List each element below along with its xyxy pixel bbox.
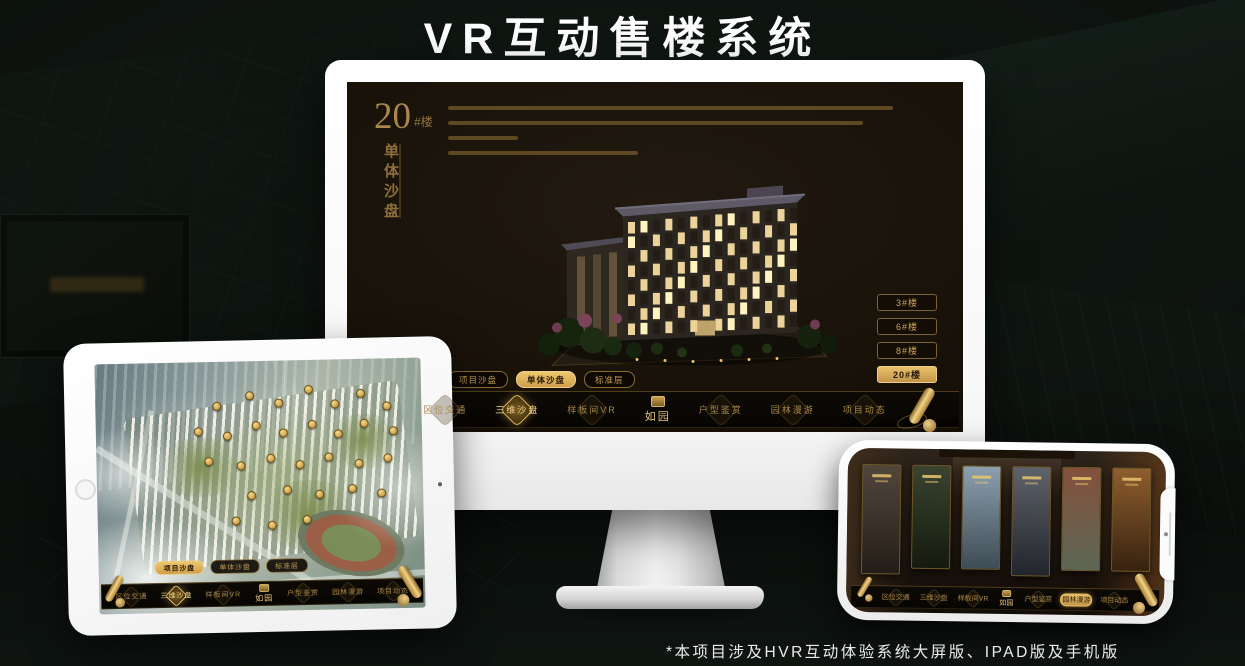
floor-button[interactable]: 8#楼 — [877, 342, 937, 359]
building-marker-icon[interactable] — [383, 453, 392, 462]
scroll-tip — [115, 598, 125, 608]
scene-panel[interactable] — [911, 465, 951, 570]
scroll-icon[interactable] — [1133, 570, 1158, 614]
building-markers — [94, 358, 425, 615]
building-marker-icon[interactable] — [348, 484, 357, 493]
page-title: VR互动售楼系统 — [0, 4, 1245, 66]
floor-button-label: 8#楼 — [896, 344, 918, 357]
building-marker-icon[interactable] — [330, 399, 339, 408]
phone-speaker-icon — [1169, 512, 1172, 556]
nav-item[interactable]: 样板间VR — [957, 591, 990, 605]
tablet-device: 项目沙盘 单体沙盘 标准层 区位交通 — [63, 336, 457, 636]
building-marker-icon[interactable] — [315, 490, 324, 499]
nav-item-label: 户型鉴赏 — [1024, 596, 1052, 603]
floor-button-label: 20#楼 — [893, 368, 921, 381]
nav-item-label: 户型鉴赏 — [699, 405, 743, 415]
scroll-tip — [923, 419, 936, 432]
nav-item-label: 园林漫游 — [1062, 596, 1090, 603]
building-marker-icon[interactable] — [308, 420, 317, 429]
brand-logo-text: 如园 — [255, 592, 273, 603]
phone-notch — [1159, 488, 1175, 580]
scroll-icon[interactable] — [858, 574, 873, 601]
nav-item-label: 园林漫游 — [332, 588, 364, 596]
nav-group-right: 户型鉴赏 园林漫游 项目动态 — [697, 399, 889, 420]
scroll-tip — [1133, 602, 1145, 614]
floor-button[interactable]: 6#楼 — [877, 318, 937, 335]
nav-item-label: 区位交通 — [882, 594, 910, 601]
floor-button[interactable]: 20#楼 — [877, 366, 937, 383]
nav-item[interactable]: 园林漫游 — [769, 399, 817, 420]
building-marker-icon[interactable] — [295, 460, 304, 469]
brand-logo: 如园 — [255, 583, 273, 603]
main-navbar: 区位交通 三维沙盘 样板间VR 如园 — [351, 391, 959, 428]
building-marker-icon[interactable] — [360, 419, 369, 428]
building-marker-icon[interactable] — [213, 402, 222, 411]
brand-logo: 如园 — [999, 589, 1013, 607]
brand-logo-text: 如园 — [645, 408, 671, 424]
view-tab-label: 单体沙盘 — [219, 561, 250, 571]
view-tab[interactable]: 标准层 — [584, 371, 635, 388]
scene-panel[interactable] — [1061, 467, 1101, 572]
view-tabs: 项目沙盘 单体沙盘 标准层 — [448, 371, 635, 388]
brand-seal-icon — [651, 396, 665, 407]
building-3d-model[interactable] — [497, 148, 877, 393]
brand-seal-icon — [259, 583, 269, 591]
building-marker-icon[interactable] — [283, 485, 292, 494]
scroll-icon[interactable] — [397, 562, 422, 606]
view-tab[interactable]: 项目沙盘 — [155, 560, 204, 575]
view-tab[interactable]: 单体沙盘 — [516, 371, 576, 388]
nav-item-label: 三维沙盘 — [495, 405, 539, 415]
nav-item[interactable]: 三维沙盘 — [493, 399, 541, 420]
building-marker-icon[interactable] — [266, 453, 275, 462]
view-tab-label: 项目沙盘 — [164, 562, 195, 572]
tablet-screen: 项目沙盘 单体沙盘 标准层 区位交通 — [94, 358, 425, 615]
promo-canvas: VR互动售楼系统 20 #楼 单体沙盘 — [0, 0, 1245, 666]
description-line — [448, 106, 893, 110]
nav-group-left: 区位交通 三维沙盘 样板间VR — [881, 590, 990, 606]
nav-item[interactable]: 区位交通 — [421, 399, 469, 420]
nav-item-label: 三维沙盘 — [160, 592, 192, 600]
view-tab-label: 标准层 — [595, 374, 624, 386]
view-tab-label: 项目沙盘 — [459, 374, 497, 386]
nav-item-label: 样板间VR — [567, 405, 617, 415]
building-marker-icon[interactable] — [324, 452, 333, 461]
phone-camera-icon — [1164, 532, 1168, 536]
building-marker-icon[interactable] — [356, 389, 365, 398]
tablet-camera-icon — [438, 482, 442, 486]
nav-item[interactable]: 项目动态 — [841, 399, 889, 420]
nav-item-label: 样板间VR — [958, 595, 989, 602]
brand-logo-text: 如园 — [999, 597, 1013, 607]
building-number: 20 — [374, 98, 411, 135]
scroll-icon[interactable] — [910, 384, 936, 432]
building-marker-icon[interactable] — [278, 428, 287, 437]
view-tab[interactable]: 单体沙盘 — [210, 559, 259, 574]
description-line — [448, 121, 863, 125]
building-marker-icon[interactable] — [377, 488, 386, 497]
brand-logo: 如园 — [645, 396, 671, 424]
building-marker-icon[interactable] — [223, 432, 232, 441]
nav-item[interactable]: 三维沙盘 — [919, 590, 949, 604]
background-billboard — [0, 214, 190, 358]
scene-gallery — [861, 464, 1152, 578]
scene-panel[interactable] — [1011, 466, 1052, 577]
phone-device: 区位交通 三维沙盘 样板间VR 如园 — [837, 440, 1175, 625]
nav-item-label: 三维沙盘 — [920, 594, 948, 601]
building-marker-icon[interactable] — [354, 459, 363, 468]
view-tab[interactable]: 标准层 — [266, 558, 308, 573]
building-marker-icon[interactable] — [252, 421, 261, 430]
floor-button-label: 3#楼 — [896, 296, 918, 309]
building-marker-icon[interactable] — [237, 461, 246, 470]
floor-selector: 3#楼 6#楼 8#楼 20#楼 — [877, 294, 937, 383]
footnote-text: *本项目涉及HVR互动体验系统大屏版、IPAD版及手机版 — [666, 640, 1120, 662]
monitor-stand-neck — [592, 500, 730, 592]
view-tab-label: 标准层 — [275, 560, 299, 570]
nav-group-right: 户型鉴赏 园林漫游 项目动态 — [1023, 592, 1129, 607]
nav-item-label: 区位交通 — [423, 405, 467, 415]
nav-item[interactable]: 户型鉴赏 — [697, 399, 745, 420]
scroll-tip — [397, 594, 409, 606]
phone-navbar: 区位交通 三维沙盘 样板间VR 如园 — [851, 585, 1159, 612]
nav-item-label: 样板间VR — [205, 591, 241, 599]
scroll-icon[interactable] — [105, 572, 125, 608]
nav-item[interactable]: 户型鉴赏 — [286, 585, 320, 600]
building-headline: 20 #楼 单体沙盘 — [374, 98, 433, 223]
building-marker-icon[interactable] — [247, 491, 256, 500]
nav-item-label: 户型鉴赏 — [287, 589, 319, 597]
nav-group-right: 户型鉴赏 园林漫游 项目动态 — [286, 583, 410, 600]
headline-divider — [399, 144, 401, 218]
building-marker-icon[interactable] — [231, 516, 240, 525]
view-tab-label: 单体沙盘 — [527, 374, 565, 386]
scene-panel[interactable] — [961, 465, 1001, 570]
nav-group-left: 区位交通 三维沙盘 样板间VR — [114, 587, 242, 604]
nav-group-left: 区位交通 三维沙盘 样板间VR — [421, 399, 619, 420]
building-marker-icon[interactable] — [334, 429, 343, 438]
building-marker-icon[interactable] — [245, 391, 254, 400]
floor-button-label: 6#楼 — [896, 320, 918, 333]
building-marker-icon[interactable] — [389, 426, 398, 435]
description-line — [448, 136, 518, 140]
headline-subtitle: 单体沙盘 — [380, 143, 401, 223]
building-marker-icon[interactable] — [274, 398, 283, 407]
nav-item[interactable]: 样板间VR — [204, 587, 242, 602]
nav-item[interactable]: 三维沙盘 — [159, 588, 193, 603]
building-marker-icon[interactable] — [267, 521, 276, 530]
view-tab[interactable]: 项目沙盘 — [448, 371, 508, 388]
nav-item[interactable]: 区位交通 — [881, 590, 911, 604]
building-marker-icon[interactable] — [194, 427, 203, 436]
scroll-tip — [865, 594, 873, 602]
nav-item-label: 项目动态 — [843, 405, 887, 415]
nav-item[interactable]: 样板间VR — [565, 399, 619, 420]
building-marker-icon[interactable] — [303, 515, 312, 524]
building-marker-icon[interactable] — [304, 385, 313, 394]
phone-screen: 区位交通 三维沙盘 样板间VR 如园 — [846, 448, 1166, 616]
monitor-stand-base — [556, 586, 764, 609]
building-marker-icon[interactable] — [204, 457, 213, 466]
nav-item-label: 项目动态 — [1100, 597, 1128, 604]
nav-item[interactable]: 户型鉴赏 — [1023, 592, 1053, 606]
nav-item[interactable]: 园林漫游 — [1061, 592, 1091, 606]
nav-item[interactable]: 园林漫游 — [331, 584, 365, 599]
building-marker-icon[interactable] — [382, 401, 391, 410]
nav-item[interactable]: 项目动态 — [1099, 593, 1129, 607]
building-number-suffix: #楼 — [414, 113, 433, 130]
floor-button[interactable]: 3#楼 — [877, 294, 937, 311]
scene-panel[interactable] — [1111, 467, 1151, 572]
nav-item-label: 园林漫游 — [771, 405, 815, 415]
tablet-home-button[interactable] — [75, 479, 96, 500]
scene-panel[interactable] — [861, 464, 902, 575]
brand-seal-icon — [1002, 589, 1011, 596]
